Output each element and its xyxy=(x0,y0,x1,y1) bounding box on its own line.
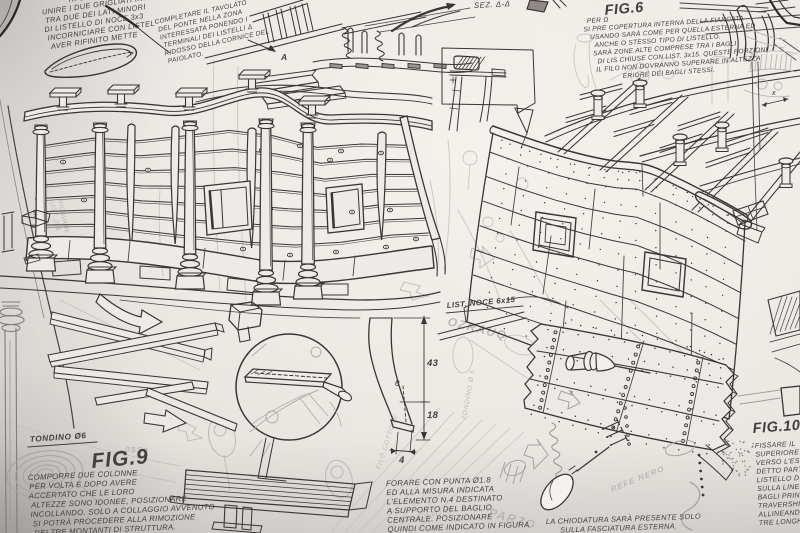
svg-text:43: 43 xyxy=(426,358,439,369)
svg-text:18: 18 xyxy=(427,410,439,421)
svg-text:x: x xyxy=(771,90,776,97)
svg-text:θ: θ xyxy=(395,379,400,388)
svg-text:A: A xyxy=(280,52,287,62)
svg-text:4: 4 xyxy=(398,455,405,466)
svg-text:FIG.10: FIG.10 xyxy=(752,418,800,437)
